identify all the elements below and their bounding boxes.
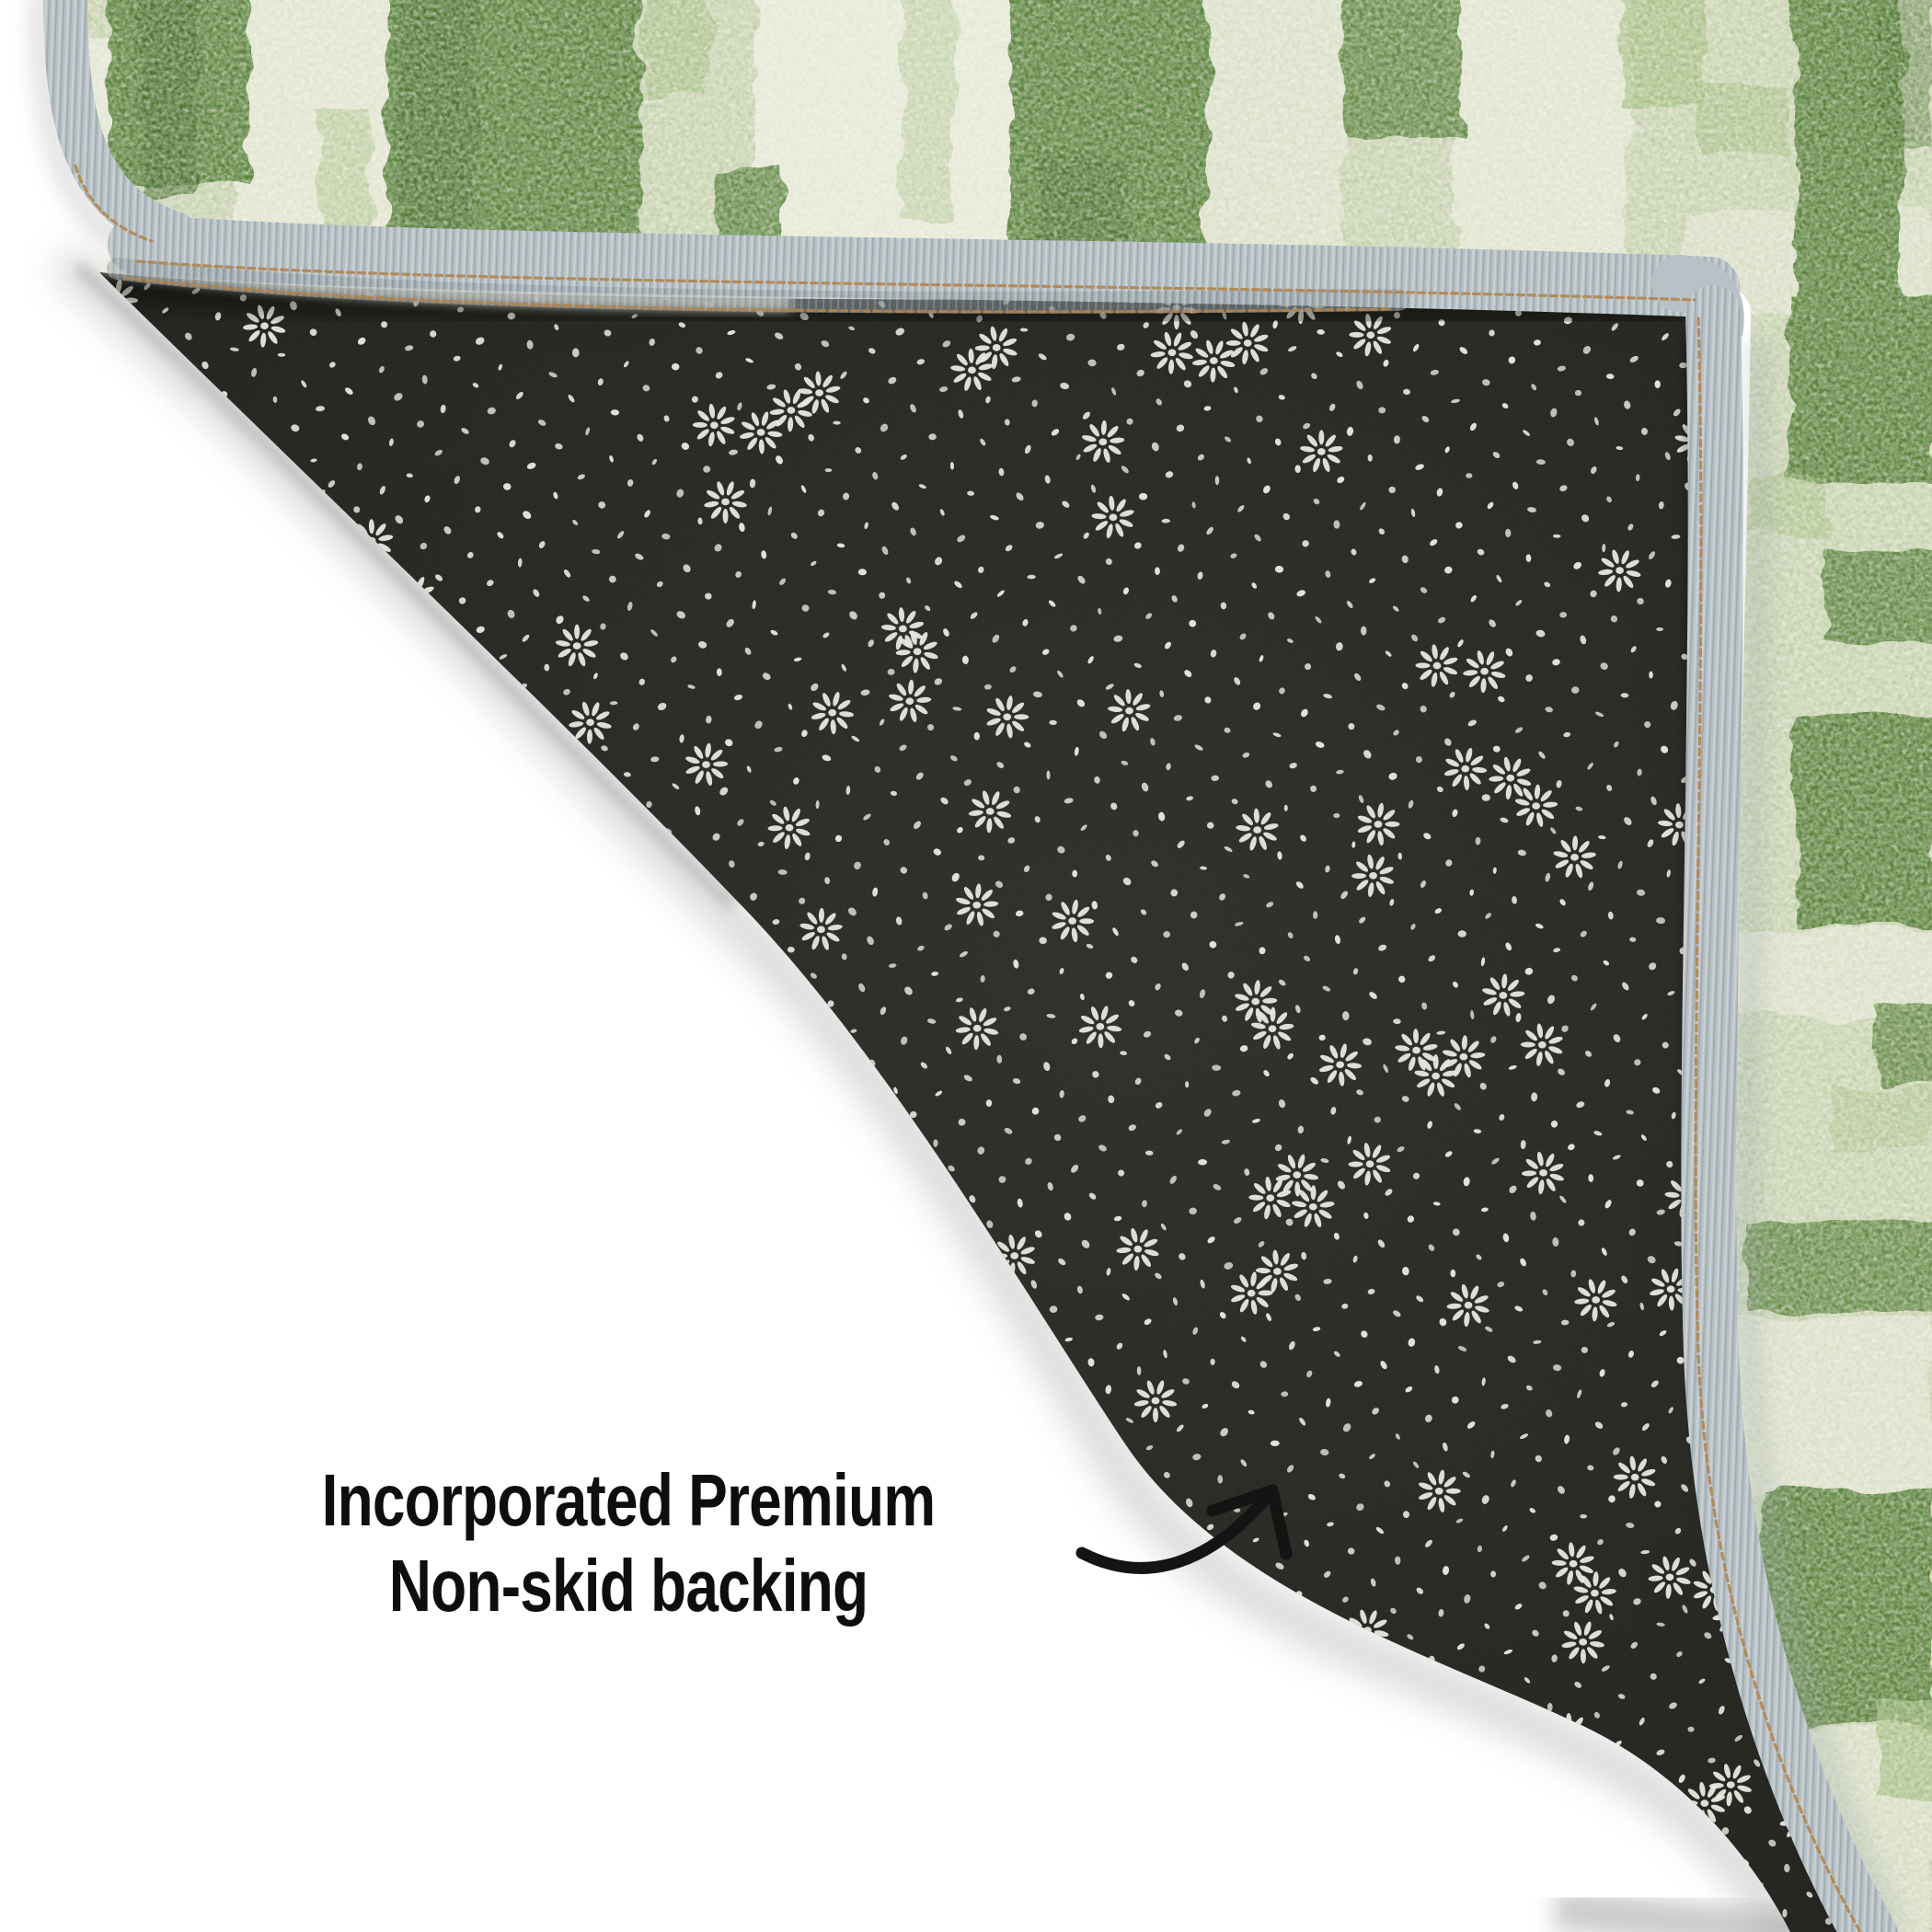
rug-photo-scene	[0, 0, 1932, 1932]
caption-line-2: Non-skid backing	[297, 1543, 960, 1628]
caption: Incorporated Premium Non-skid backing	[297, 1457, 960, 1628]
caption-line-1: Incorporated Premium	[297, 1457, 960, 1543]
product-photo: Incorporated Premium Non-skid backing	[0, 0, 1932, 1932]
